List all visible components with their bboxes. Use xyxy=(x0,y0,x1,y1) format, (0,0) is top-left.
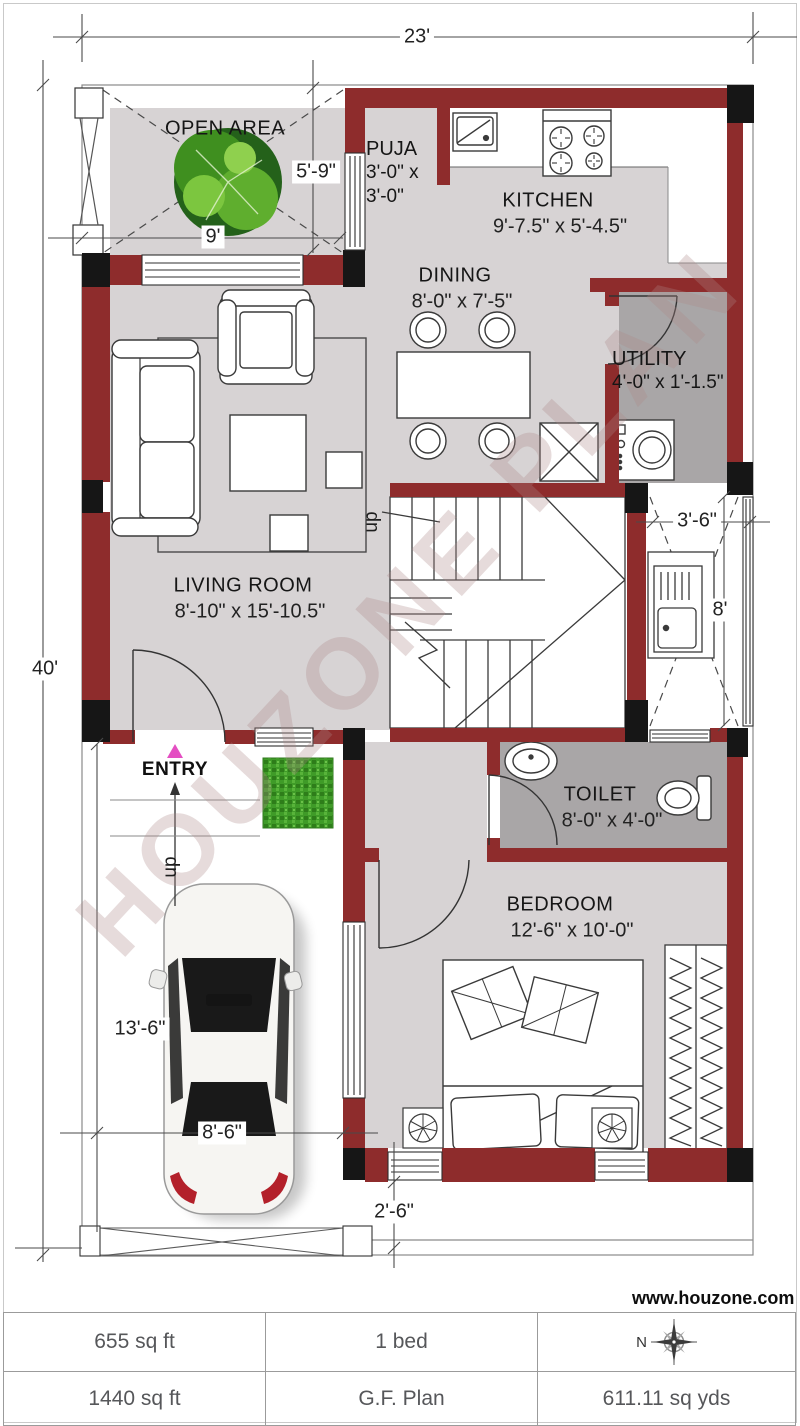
dim-open-width: 9' xyxy=(202,226,225,249)
dining-label: DINING xyxy=(419,265,492,288)
puja-size-1: 3'-0" x xyxy=(366,161,419,185)
dim-shaft-depth: 8' xyxy=(709,599,732,622)
kitchen-size: 9'-7.5" x 5'-4.5" xyxy=(493,216,627,239)
compass-icon xyxy=(651,1319,697,1365)
kitchen-label: KITCHEN xyxy=(502,190,593,213)
tree-icon xyxy=(174,128,282,236)
dim-porch-width: 8'-6" xyxy=(198,1122,246,1145)
puja-label: PUJA 3'-0" x 3'-0" xyxy=(366,137,419,209)
floor-plan-page: HOUZONE PLAN OPEN AREA PUJA 3'-0" x 3'-0… xyxy=(0,0,800,1426)
utility-label: UTILITY 4'-0" x 1'-1.5" xyxy=(612,347,724,395)
puja-size-2: 3'-0" xyxy=(366,185,419,209)
open-area-label: OPEN AREA xyxy=(165,118,285,141)
car xyxy=(148,884,306,1220)
dim-open-depth: 5'-9" xyxy=(292,161,340,184)
website-url: www.houzone.com xyxy=(632,1288,792,1309)
plan-name-cell: G.F. Plan xyxy=(266,1372,538,1425)
built-area-cell: 655 sq ft xyxy=(4,1313,266,1372)
dim-shaft-width: 3'-6" xyxy=(673,510,721,533)
toilet-size: 8'-0" x 4'-0" xyxy=(562,810,663,833)
dining-size: 8'-0" x 7'-5" xyxy=(412,291,513,314)
staircase xyxy=(382,497,625,728)
dim-setback: 2'-6" xyxy=(370,1201,418,1224)
dim-plot-width: 23' xyxy=(400,26,434,49)
dim-porch-depth: 13'-6" xyxy=(111,1018,170,1041)
summary-table: 655 sq ft 1 bed N xyxy=(3,1312,796,1426)
utility-size: 4'-0" x 1'-1.5" xyxy=(612,371,724,395)
compass-north-label: N xyxy=(636,1334,647,1351)
bedroom-label: BEDROOM xyxy=(507,894,614,917)
washbasin-icon xyxy=(505,742,557,780)
entry-label: ENTRY xyxy=(142,759,208,781)
washing-machine-icon xyxy=(610,420,674,480)
dim-plot-depth: 40' xyxy=(28,658,62,681)
gate xyxy=(80,1226,372,1256)
wash-counter xyxy=(648,552,714,658)
plot-yards-cell: 611.11 sq yds xyxy=(538,1372,795,1425)
toilet-label: TOILET xyxy=(564,784,637,807)
stove-icon xyxy=(543,110,611,176)
grass-patch xyxy=(263,758,333,828)
puja-name: PUJA xyxy=(366,137,419,161)
bedroom-size: 12'-6" x 10'-0" xyxy=(510,920,633,943)
stairs-up-label: up xyxy=(361,511,383,532)
beds-cell: 1 bed xyxy=(266,1313,538,1372)
kitchen-sink-icon xyxy=(453,113,497,151)
wardrobe xyxy=(665,945,727,1155)
entry-up-label: up xyxy=(160,856,182,877)
utility-name: UTILITY xyxy=(612,347,724,371)
crossed-box xyxy=(540,423,598,481)
living-room-label: LIVING ROOM xyxy=(174,575,313,598)
compass-cell: N xyxy=(538,1313,795,1372)
living-room-size: 8'-10" x 15'-10.5" xyxy=(175,601,326,624)
plot-area-cell: 1440 sq ft xyxy=(4,1372,266,1425)
